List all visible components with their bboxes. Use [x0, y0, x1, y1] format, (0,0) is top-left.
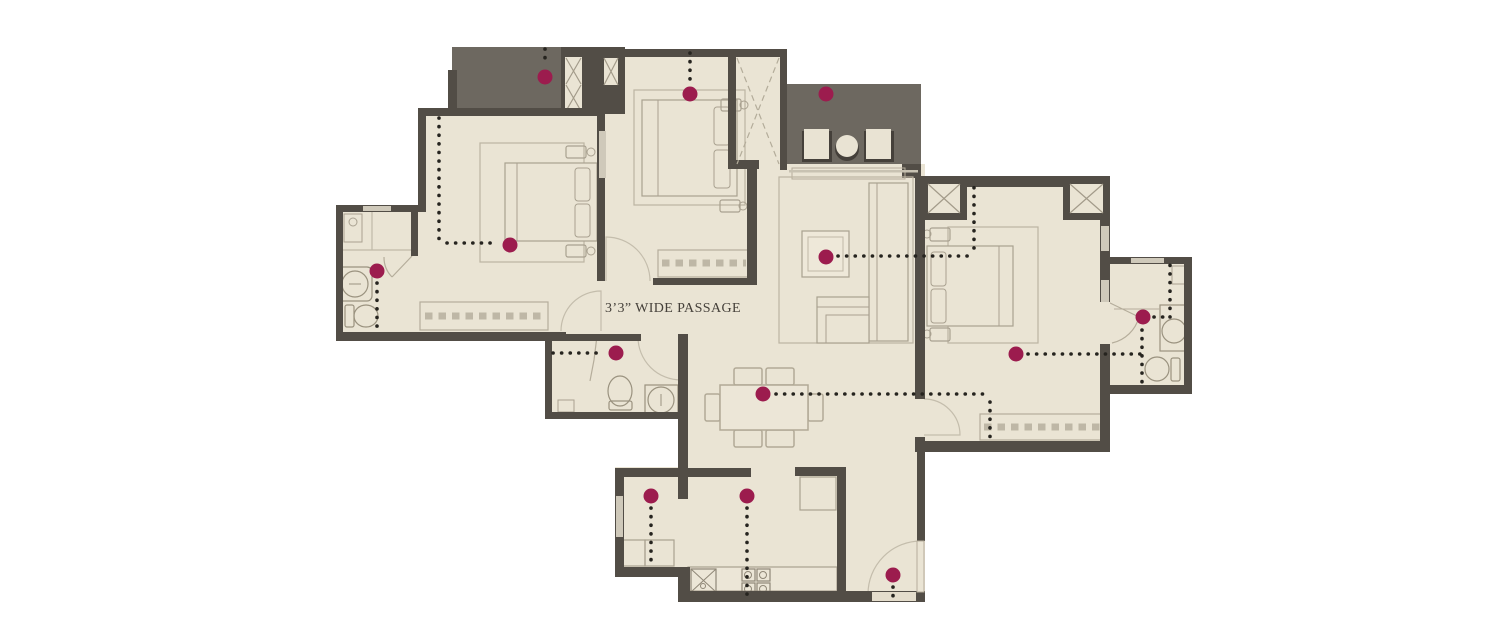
svg-text:3’3” WIDE PASSAGE: 3’3” WIDE PASSAGE: [605, 301, 741, 316]
